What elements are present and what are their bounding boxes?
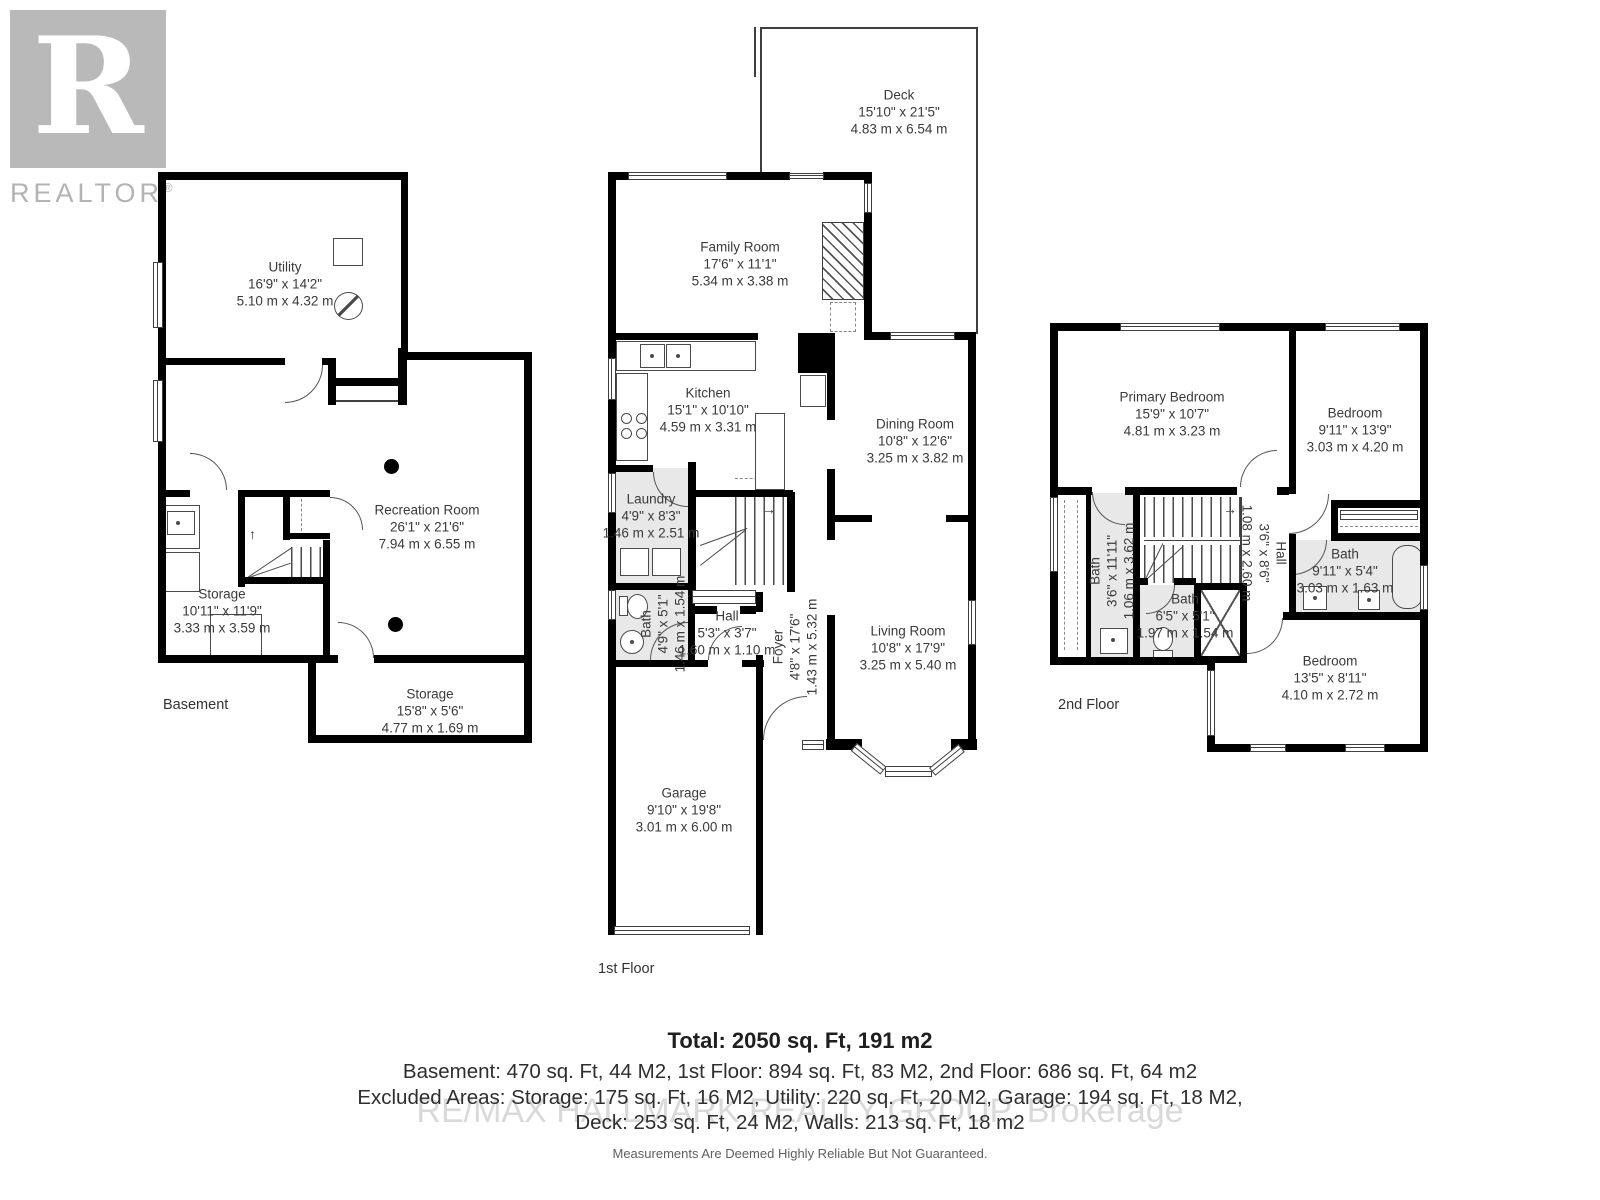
room-dims-m: 5.10 m x 4.32 m — [237, 293, 334, 310]
closet-dash-line — [1077, 500, 1078, 650]
room-dims-ft: 4'9" x 5'1" — [655, 576, 672, 673]
room-label-bedroom2: Bedroom 9'11" x 13'9" 3.03 m x 4.20 m — [1307, 405, 1404, 456]
room-name: Dining Room — [867, 416, 964, 433]
bay-window — [885, 766, 932, 777]
wall — [1125, 487, 1237, 495]
deck-edge — [754, 27, 756, 77]
wall — [608, 333, 758, 340]
room-name: Laundry — [603, 491, 700, 508]
room-dims-m: 7.94 m x 6.55 m — [374, 536, 479, 553]
wall — [690, 490, 793, 497]
window — [968, 600, 976, 645]
room-label-bath-long: Bath 3'6" x 11'11" 1.06 m x 3.62 m — [1087, 523, 1138, 620]
room-dims-m: 1.43 m x 5.32 m — [804, 599, 821, 696]
support-column — [384, 459, 399, 474]
wall — [238, 490, 245, 587]
room-name: Garage — [636, 785, 733, 802]
room-label-garage: Garage 9'10" x 19'8" 3.01 m x 6.00 m — [636, 785, 733, 836]
sidelight-window — [802, 740, 824, 750]
wall — [158, 358, 285, 365]
sliding-door — [789, 173, 824, 179]
floor-title-first: 1st Floor — [598, 961, 654, 977]
floor-areas-text: Basement: 470 sq. Ft, 44 M2, 1st Floor: … — [0, 1059, 1600, 1085]
window — [1345, 744, 1385, 752]
wall — [401, 172, 408, 360]
room-dims-m: 1.60 m x 1.10 m — [679, 642, 776, 659]
room-dims-m: 3.03 m x 4.20 m — [1307, 439, 1404, 456]
realtor-logo-letter: R — [32, 7, 143, 165]
door-arc — [1240, 450, 1277, 487]
room-dims-ft: 26'1" x 21'6" — [374, 519, 479, 536]
room-dims-ft: 15'8" x 5'6" — [382, 703, 479, 720]
wall — [283, 533, 330, 539]
room-label-storage1: Storage 10'11" x 11'9" 3.33 m x 3.59 m — [174, 586, 271, 637]
room-name: Family Room — [692, 239, 789, 256]
stove-burner — [636, 428, 647, 439]
floor-title-basement: Basement — [163, 697, 228, 713]
room-label-dining: Dining Room 10'8" x 12'6" 3.25 m x 3.82 … — [867, 416, 964, 467]
room-dims-m: 4.81 m x 3.23 m — [1119, 423, 1224, 440]
room-dims-ft: 9'11" x 13'9" — [1307, 422, 1404, 439]
stairs-direction-arrow: ↑ — [249, 527, 256, 541]
room-name: Bedroom — [1282, 653, 1379, 670]
realtor-brand-text: REALTOR — [10, 178, 163, 208]
faucet-dot — [1367, 598, 1371, 602]
room-label-foyer: Foyer 4'8" x 17'6" 1.43 m x 5.32 m — [770, 599, 821, 696]
room-dims-ft: 13'5" x 8'11" — [1282, 670, 1379, 687]
area-summary: RE/MAX HALLMARK REALTY GROUP, Brokerage … — [0, 1028, 1600, 1161]
wall — [827, 615, 835, 748]
room-dims-ft: 15'10" x 21'5" — [851, 104, 948, 121]
wall — [308, 655, 316, 743]
room-dims-m: 3.25 m x 5.40 m — [860, 657, 957, 674]
room-label-hall2: Hall 3'6" x 8'6" 1.08 m x 2.60 m — [1239, 505, 1290, 602]
wall — [1207, 744, 1428, 752]
kitchen-peninsula — [755, 413, 785, 490]
wall — [336, 378, 398, 386]
window — [1050, 497, 1058, 572]
closet-dash-line — [1340, 526, 1418, 527]
sliding-door — [890, 332, 955, 340]
room-name: Storage — [174, 586, 271, 603]
room-dims-m: 1.46 m x 2.51 m — [603, 525, 700, 542]
wall — [1331, 533, 1428, 541]
window — [608, 358, 616, 400]
faucet-dot — [1111, 638, 1115, 642]
wall — [946, 515, 970, 522]
room-dims-ft: 10'8" x 17'9" — [860, 640, 957, 657]
room-dims-ft: 9'11" x 5'4" — [1297, 563, 1394, 580]
stairs-direction-arrow: → — [1223, 502, 1237, 516]
room-dims-ft: 10'11" x 11'9" — [174, 603, 271, 620]
room-dims-m: 1.97 m x 1.54 m — [1137, 625, 1234, 642]
faucet-dot — [650, 354, 654, 358]
stairs-treads — [291, 547, 324, 578]
room-dims-m: 4.77 m x 1.69 m — [382, 720, 479, 737]
room-name: Primary Bedroom — [1119, 389, 1224, 406]
room-dims-m: 1.08 m x 2.60 m — [1239, 505, 1256, 602]
wall — [158, 172, 408, 180]
room-label-primary-bedroom: Primary Bedroom 15'9" x 10'7" 4.81 m x 3… — [1119, 389, 1224, 440]
bathtub — [1392, 545, 1423, 609]
room-name: Bath — [1087, 523, 1104, 620]
closet-slider — [1340, 510, 1418, 520]
wall — [1283, 612, 1428, 620]
room-name: Recreation Room — [374, 502, 479, 519]
room-dims-m: 4.83 m x 6.54 m — [851, 121, 948, 138]
wall — [1050, 323, 1058, 665]
room-name: Bedroom — [1307, 405, 1404, 422]
room-dims-ft: 17'6" x 11'1" — [692, 256, 789, 273]
room-label-living: Living Room 10'8" x 17'9" 3.25 m x 5.40 … — [860, 623, 957, 674]
room-label-family: Family Room 17'6" x 11'1" 5.34 m x 3.38 … — [692, 239, 789, 290]
wall-line — [336, 400, 398, 402]
electrical-panel — [333, 238, 363, 266]
wall — [1137, 578, 1148, 585]
realtor-logo-icon: R — [10, 10, 166, 168]
wall — [798, 333, 835, 373]
room-dims-m: 3.33 m x 3.59 m — [174, 620, 271, 637]
room-label-deck: Deck 15'10" x 21'5" 4.83 m x 6.54 m — [851, 87, 948, 138]
faucet-dot — [676, 354, 680, 358]
total-area-text: Total: 2050 sq. Ft, 191 m2 — [0, 1028, 1600, 1054]
wall — [1289, 534, 1296, 616]
floor-title-second: 2nd Floor — [1058, 697, 1119, 713]
room-name: Utility — [237, 259, 334, 276]
wall — [827, 469, 835, 540]
room-dims-ft: 15'1" x 10'10" — [660, 402, 757, 419]
deck-edge — [760, 27, 978, 29]
window — [153, 262, 163, 328]
fireplace — [822, 222, 864, 300]
room-dims-m: 3.01 m x 6.00 m — [636, 819, 733, 836]
room-dims-m: 3.25 m x 3.82 m — [867, 450, 964, 467]
wall — [1174, 578, 1196, 585]
wall — [756, 740, 763, 750]
hall-closet — [692, 590, 756, 604]
window — [628, 172, 727, 180]
hearth — [830, 302, 856, 332]
faucet-dot — [176, 521, 180, 525]
window — [1420, 565, 1428, 610]
wall — [831, 515, 872, 522]
window — [608, 590, 616, 620]
room-name: Bath — [1297, 546, 1394, 563]
stove-burner — [636, 413, 647, 424]
wall — [238, 577, 330, 584]
wall — [756, 655, 763, 935]
stairs-direction-arrow: → — [762, 502, 776, 516]
room-dims-m: 3.03 m x 1.63 m — [1297, 580, 1394, 597]
utility-meter-icon — [334, 292, 363, 320]
closet-dash-line — [301, 494, 302, 536]
stove-burner — [621, 428, 632, 439]
room-dims-ft: 6'5" x 5'1" — [1137, 608, 1234, 625]
wall — [608, 465, 653, 472]
room-label-kitchen: Kitchen 15'1" x 10'10" 4.59 m x 3.31 m — [660, 385, 757, 436]
room-label-utility: Utility 16'9" x 14'2" 5.10 m x 4.32 m — [237, 259, 334, 310]
room-name: Hall — [1273, 505, 1290, 602]
wall — [328, 358, 336, 405]
room-name: Deck — [851, 87, 948, 104]
room-name: Foyer — [770, 599, 787, 696]
room-name: Storage — [382, 686, 479, 703]
wall — [374, 655, 532, 663]
wall — [524, 352, 532, 743]
window — [864, 183, 872, 213]
wall — [1331, 500, 1420, 508]
wall — [1289, 331, 1296, 494]
realtor-wordmark: REALTOR® — [10, 178, 177, 209]
room-dims-ft: 16'9" x 14'2" — [237, 276, 334, 293]
room-name: Kitchen — [660, 385, 757, 402]
window — [1207, 670, 1215, 736]
room-label-bedroom3: Bedroom 13'5" x 8'11" 4.10 m x 2.72 m — [1282, 653, 1379, 704]
room-dims-ft: 4'9" x 8'3" — [603, 508, 700, 525]
room-dims-m: 4.59 m x 3.31 m — [660, 419, 757, 436]
room-dims-ft: 3'6" x 8'6" — [1256, 505, 1273, 602]
stairs-divider — [1144, 540, 1240, 541]
room-label-recreation: Recreation Room 26'1" x 21'6" 7.94 m x 6… — [374, 502, 479, 553]
closet-dash-line — [1064, 500, 1065, 650]
wall — [1277, 487, 1289, 495]
floorplan-page: R REALTOR® ↑ — [0, 0, 1600, 1200]
deck-edge — [976, 27, 978, 334]
garage-door — [614, 926, 750, 935]
deck-edge — [760, 27, 762, 174]
wall — [827, 373, 835, 420]
door-arc — [1247, 618, 1283, 654]
room-dims-m: 4.10 m x 2.72 m — [1282, 687, 1379, 704]
laundry-sink-basin — [167, 511, 195, 535]
wall — [608, 172, 616, 935]
wall — [158, 490, 190, 497]
cabinet — [800, 375, 826, 407]
room-label-laundry: Laundry 4'9" x 8'3" 1.46 m x 2.51 m — [603, 491, 700, 542]
disclaimer-text: Measurements Are Deemed Highly Reliable … — [0, 1146, 1600, 1161]
room-name: Bath — [1137, 591, 1234, 608]
room-dims-m: 5.34 m x 3.38 m — [692, 273, 789, 290]
wall — [323, 540, 330, 662]
window — [1250, 744, 1286, 752]
room-dims-ft: 4'8" x 17'6" — [787, 599, 804, 696]
room-dims-ft: 5'3" x 3'7" — [679, 625, 776, 642]
wall — [398, 348, 407, 405]
wall — [787, 492, 795, 592]
room-name: Hall — [679, 608, 776, 625]
support-column — [388, 617, 403, 632]
wall — [158, 655, 338, 663]
room-dims-ft: 9'10" x 19'8" — [636, 802, 733, 819]
room-dims-ft: 15'9" x 10'7" — [1119, 406, 1224, 423]
room-dims-ft: 3'6" x 11'11" — [1104, 523, 1121, 620]
window — [153, 380, 163, 442]
room-label-bath-main: Bath 9'11" x 5'4" 3.03 m x 1.63 m — [1297, 546, 1394, 597]
room-name: Living Room — [860, 623, 957, 640]
wall — [401, 352, 532, 360]
room-name: Bath — [638, 576, 655, 673]
room-label-bath-small: Bath 6'5" x 5'1" 1.97 m x 1.54 m — [1137, 591, 1234, 642]
door-arc — [1289, 494, 1329, 534]
excluded-areas-text: Excluded Areas: Storage: 175 sq. Ft, 16 … — [0, 1085, 1600, 1111]
washer — [620, 548, 649, 576]
room-label-hall1: Hall 5'3" x 3'7" 1.60 m x 1.10 m — [679, 608, 776, 659]
room-label-storage2: Storage 15'8" x 5'6" 4.77 m x 1.69 m — [382, 686, 479, 737]
excluded-areas-text2: Deck: 253 sq. Ft, 24 M2, Walls: 213 sq. … — [0, 1110, 1600, 1136]
dryer — [652, 548, 681, 576]
faucet-dot — [1313, 596, 1317, 600]
window — [1120, 323, 1220, 331]
wall — [968, 332, 976, 750]
room-dims-m: 1.06 m x 3.62 m — [1121, 523, 1138, 620]
room-dims-ft: 10'8" x 12'6" — [867, 433, 964, 450]
faucet-dot — [630, 640, 634, 644]
stove-burner — [621, 413, 632, 424]
window — [1325, 323, 1400, 331]
wall — [1331, 500, 1338, 540]
